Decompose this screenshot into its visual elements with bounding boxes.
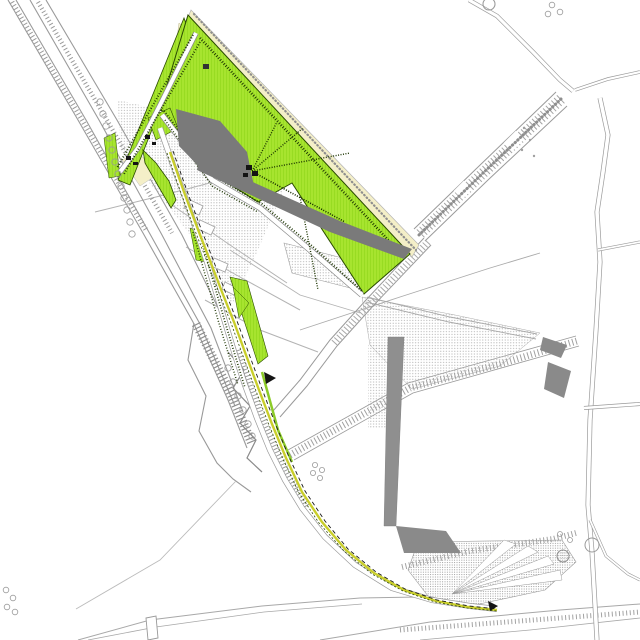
building-hub-1 — [246, 165, 252, 170]
building-junction-3 — [126, 156, 131, 160]
drawing-viewport — [0, 0, 640, 640]
building-junction-1 — [145, 135, 150, 139]
building-hub-2 — [252, 171, 258, 176]
traffic-island — [146, 616, 158, 640]
parking-fan-circle — [557, 550, 569, 562]
site-plan-canvas — [0, 0, 640, 640]
bridge-mark-north — [203, 64, 209, 69]
building-junction-4 — [133, 162, 138, 165]
building-hub-3 — [243, 173, 248, 177]
building-junction-2 — [152, 142, 156, 145]
